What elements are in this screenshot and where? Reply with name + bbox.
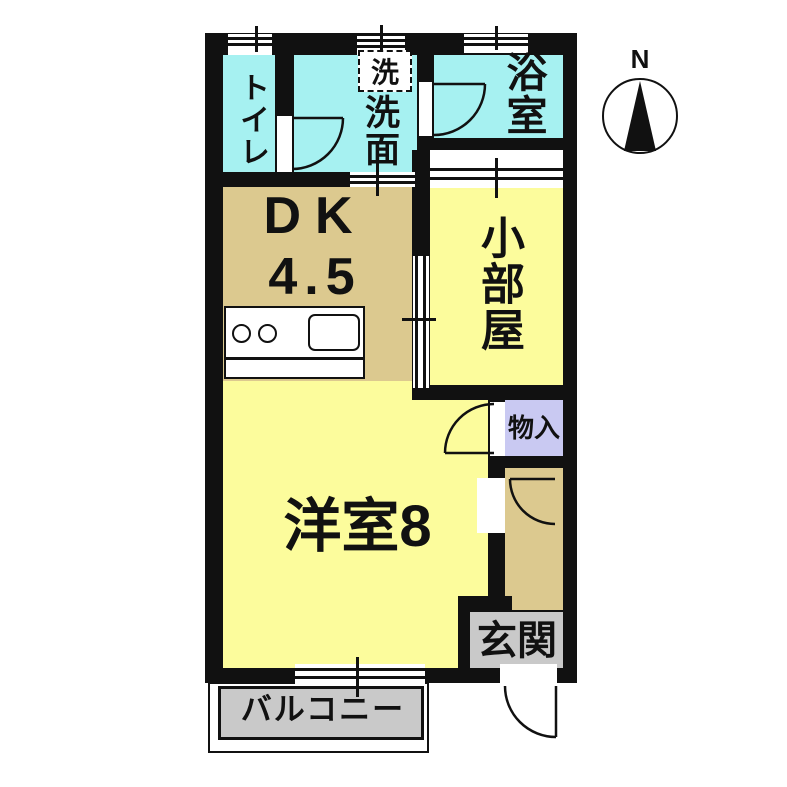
compass-n-label: N [620,46,660,74]
washroom-label: 洗面 [359,90,397,172]
entrance-label: 玄関 [472,620,562,666]
floor-plan: 洗 トイレ 洗面 浴室 DK 4.5 小部屋 物入 洋室8 玄関 バルコニー N [0,0,787,787]
kitchen-sink [308,314,360,351]
compass-needle [624,81,656,151]
bathroom-label: 浴室 [500,50,544,138]
western-room-label: 洋室8 [255,497,460,567]
toilet-window-tick [255,26,258,52]
dk-size-label: 4.5 [250,250,380,306]
dk-smallroom-slidingdoor-line [423,256,426,388]
entrance-door-opening [500,664,557,686]
wall-outer-right [563,33,577,683]
westernroom-balcony-window [295,664,425,684]
washer-box: 洗 [358,50,412,92]
toilet-door-opening [277,116,292,172]
compass-circle [603,79,677,153]
bathroom-window-tick [495,26,498,50]
toilet-window-line [228,43,272,46]
dk-label: DK [250,189,380,243]
wall-entrance-left [458,596,470,683]
toilet-label: トイレ [233,62,267,177]
bathroom-smallroom-window-tick [495,158,498,198]
line-hall-entrance [505,610,563,612]
wall-outer-left [205,33,223,683]
washer-box-label: 洗 [371,51,399,91]
small-room-label: 小部屋 [473,194,521,374]
westernroom-balcony-window-line [295,676,425,679]
toilet-window-line [228,37,272,40]
washroom-window-tick [380,25,383,52]
storage-door-opening [490,402,505,456]
dk-smallroom-slidingdoor-line [415,256,418,388]
counter-divider [225,357,364,360]
dk-washroom-slidingdoor-line [350,181,415,184]
stove-burner [258,324,277,343]
balcony-label: バルコニー [228,694,418,730]
bathroom-door-opening [419,82,432,136]
storage-label: 物入 [504,415,564,445]
westernroom-balcony-window-line [295,668,425,671]
kitchen-counter [224,306,365,379]
stove-burner [232,324,251,343]
dk-smallroom-slidingdoor-tick [402,318,436,321]
entrance-door-arc [505,686,556,737]
westernroom-balcony-window-tick [356,657,359,697]
dk-washroom-slidingdoor-line [350,175,415,178]
hall-door-opening [477,478,505,533]
wall-storage-bottom [488,456,563,468]
